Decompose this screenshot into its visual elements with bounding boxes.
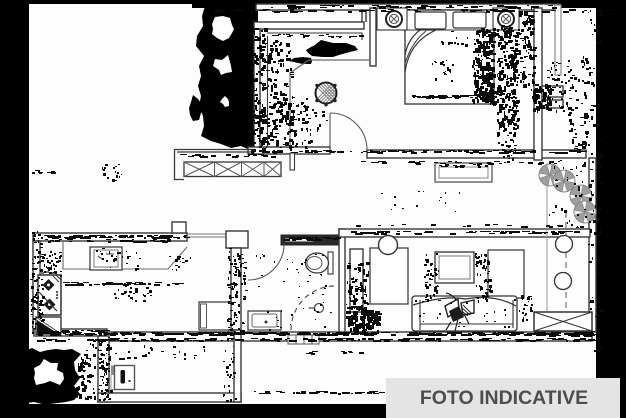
svg-text:FOTO INDICATIVE: FOTO INDICATIVE bbox=[420, 387, 588, 409]
